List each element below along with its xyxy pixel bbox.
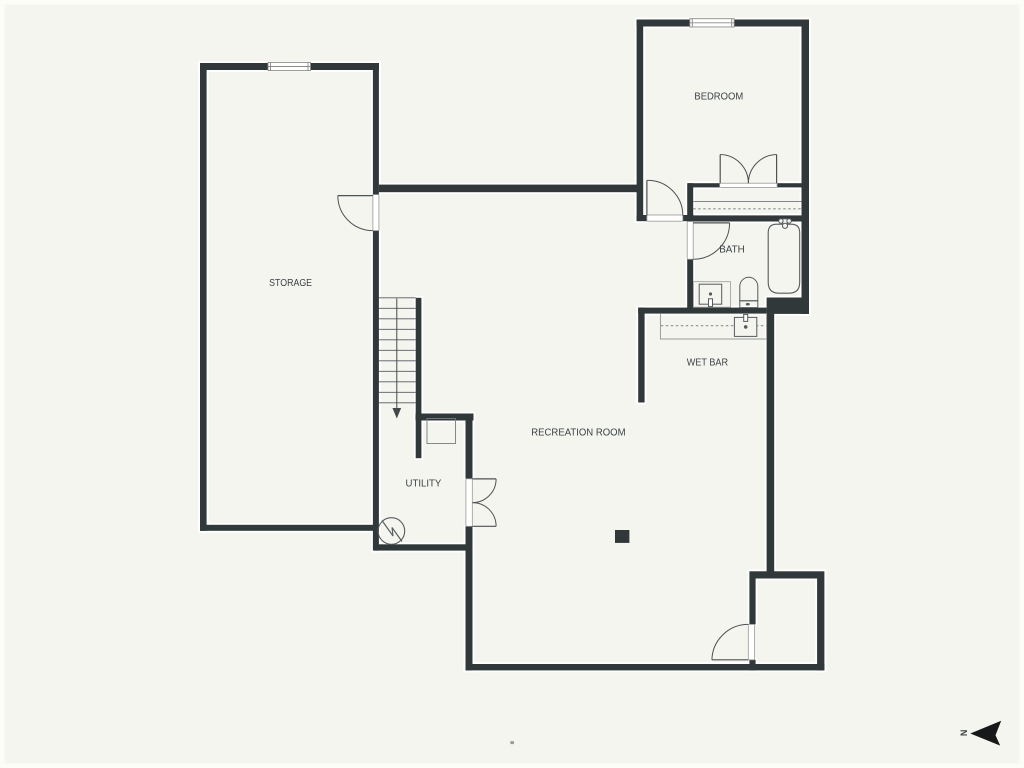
svg-text:STORAGE: STORAGE <box>269 278 312 289</box>
svg-text:N: N <box>959 730 969 737</box>
svg-text:BEDROOM: BEDROOM <box>694 92 743 103</box>
svg-text:UTILITY: UTILITY <box>406 478 442 489</box>
svg-text:WET BAR: WET BAR <box>687 358 728 369</box>
svg-text:BATH: BATH <box>719 245 745 256</box>
svg-text:RECREATION ROOM: RECREATION ROOM <box>531 428 625 439</box>
